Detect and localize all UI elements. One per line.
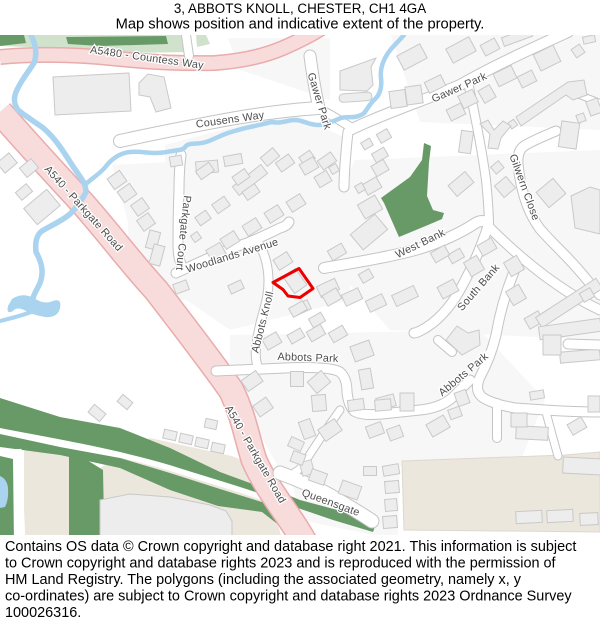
svg-text:HM Land Registry. The polygons: HM Land Registry. The polygons (includin… bbox=[5, 572, 522, 588]
svg-text:to Crown copyright and databas: to Crown copyright and database rights 2… bbox=[5, 556, 557, 572]
svg-text:Abbots Park: Abbots Park bbox=[277, 351, 339, 365]
svg-text:Map shows position and indicat: Map shows position and indicative extent… bbox=[116, 17, 485, 33]
svg-text:3, ABBOTS KNOLL, CHESTER, CH1: 3, ABBOTS KNOLL, CHESTER, CH1 4GA bbox=[174, 1, 426, 16]
svg-text:co-ordinates) are subject to C: co-ordinates) are subject to Crown copyr… bbox=[5, 589, 572, 605]
svg-text:Contains OS data © Crown copyr: Contains OS data © Crown copyright and d… bbox=[5, 539, 576, 555]
svg-text:100026316.: 100026316. bbox=[5, 605, 81, 621]
